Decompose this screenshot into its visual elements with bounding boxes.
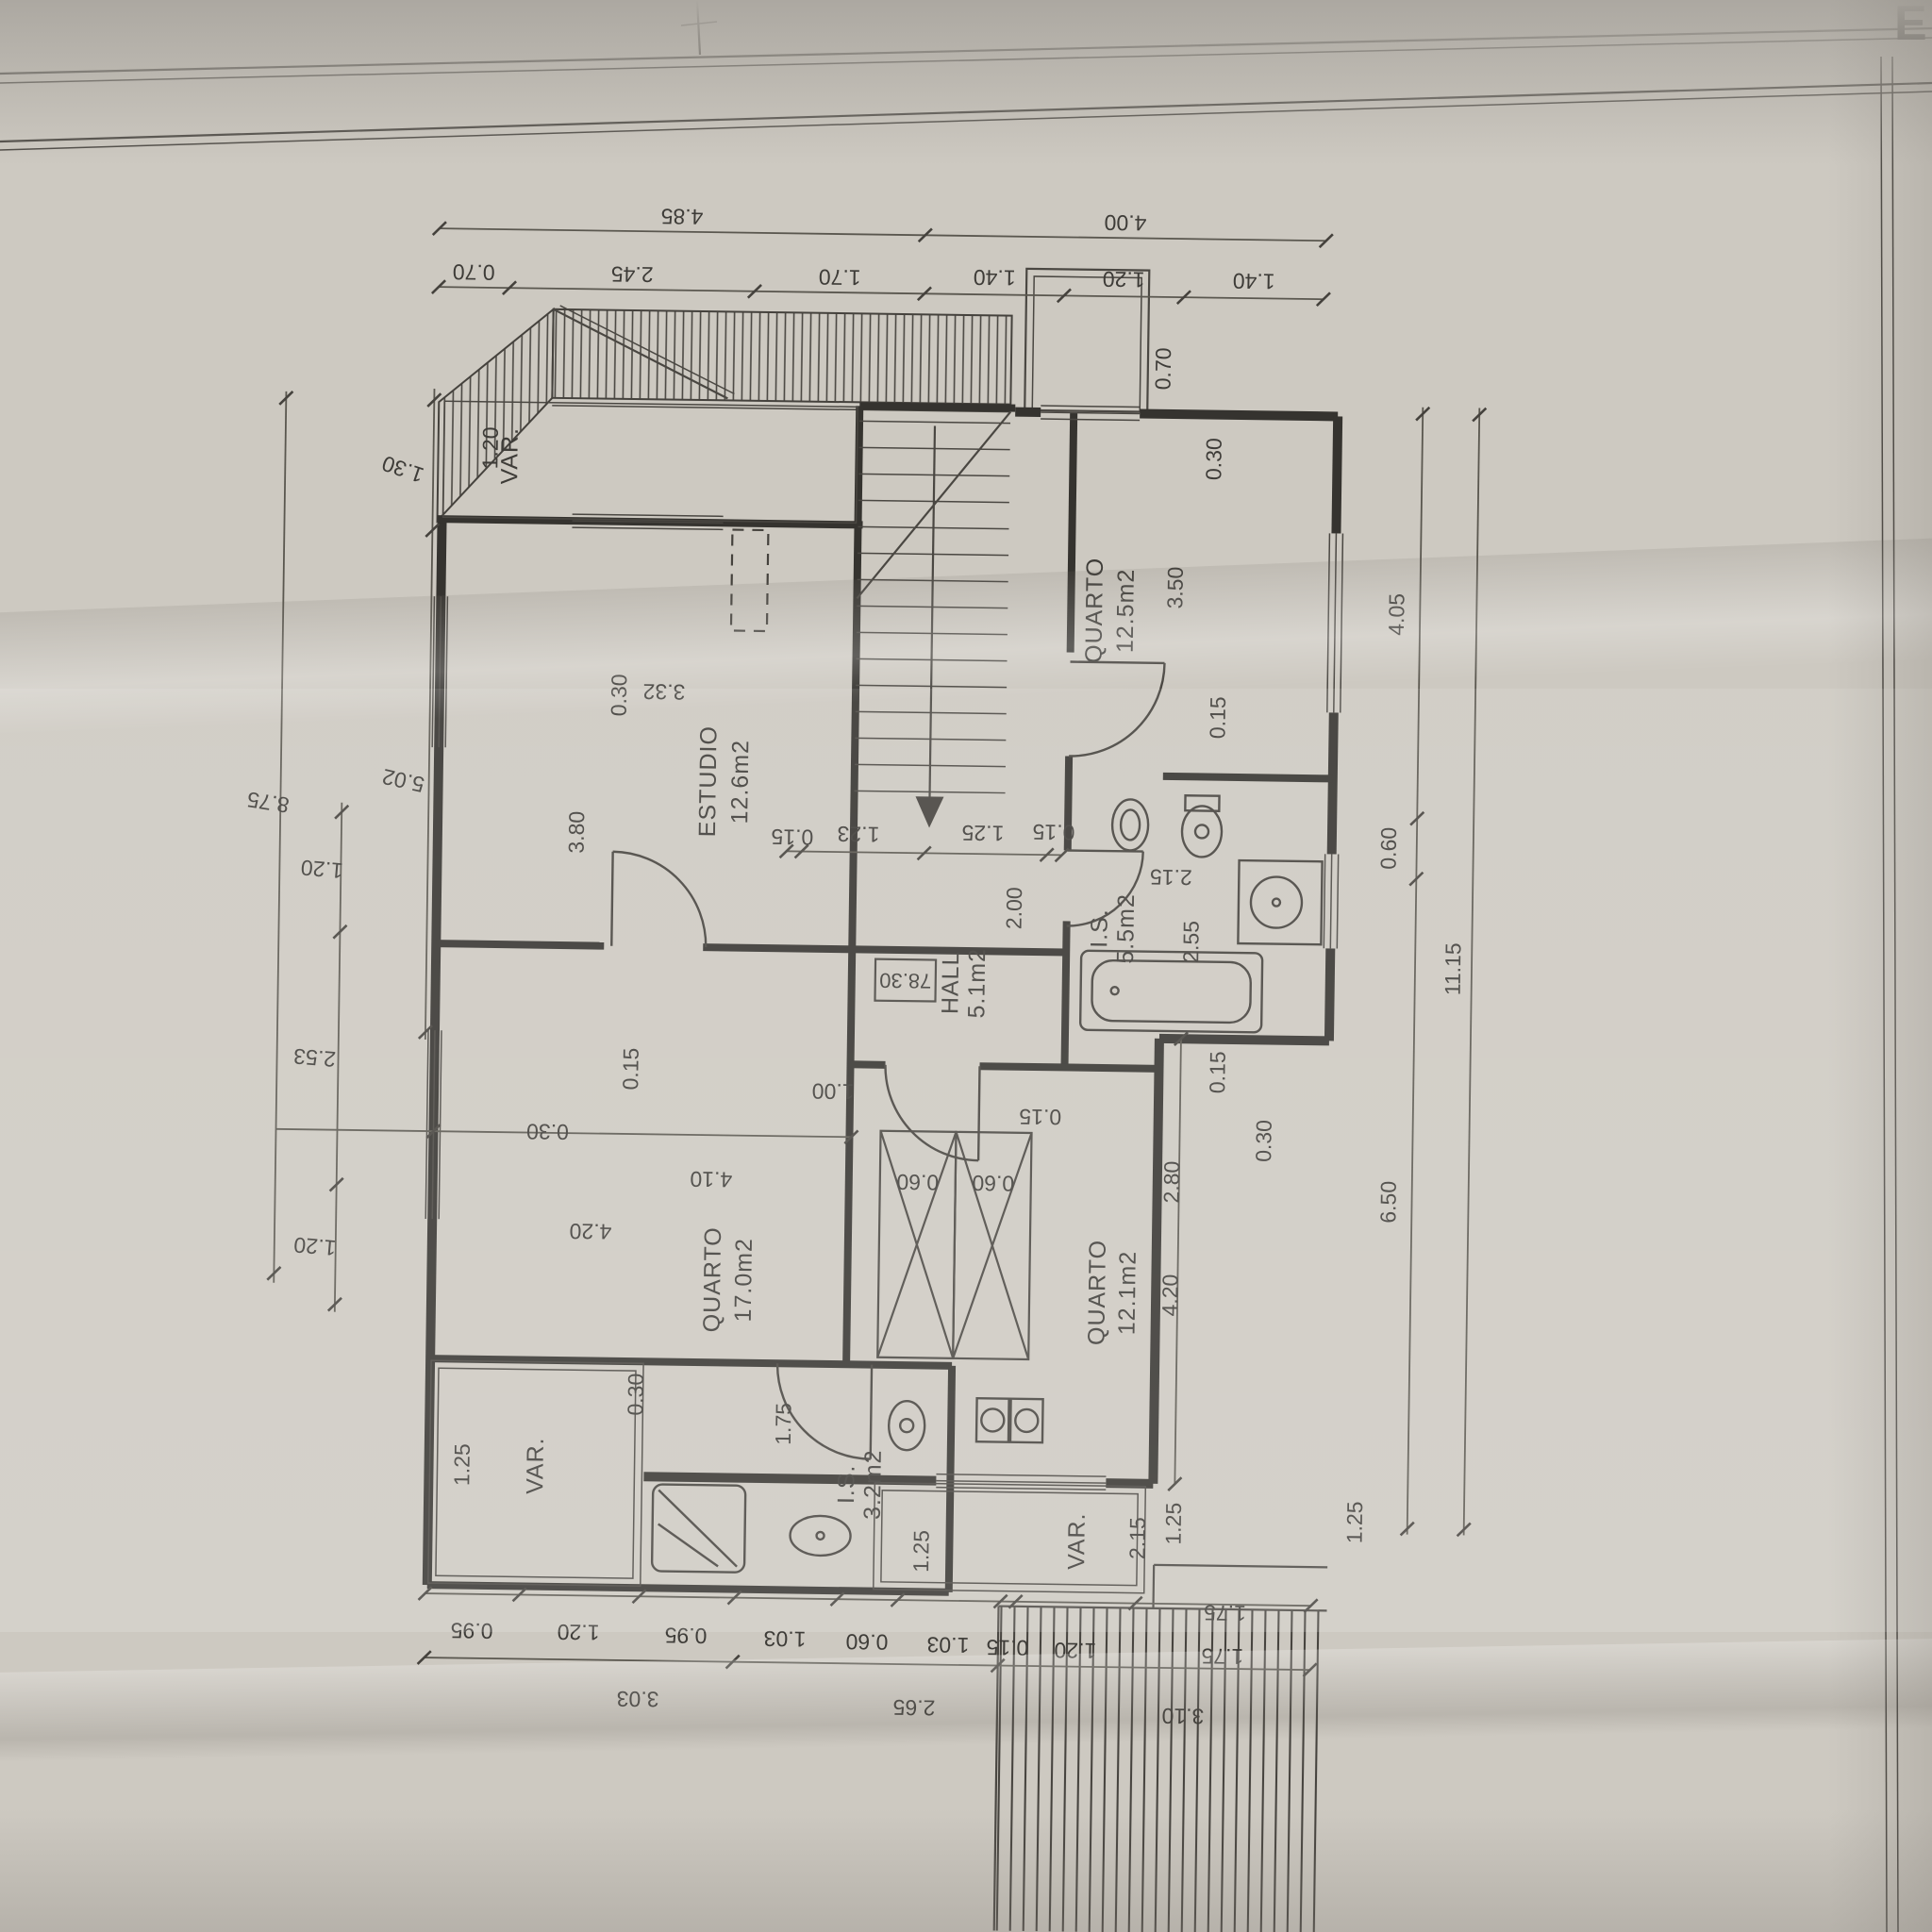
dim: 1.20: [558, 1620, 600, 1645]
dim: 0.60: [972, 1171, 1014, 1196]
dim: 1.03: [763, 1626, 806, 1652]
dim: 0.15: [1032, 820, 1074, 845]
room-label: QUARTO: [1080, 558, 1108, 663]
dim: 1.20: [1054, 1638, 1096, 1663]
washbasin-small-icon: [790, 1515, 851, 1556]
room-labels: ESTUDIO 12.6m2 QUARTO 12.5m2 I.S. 5.5m2 …: [481, 427, 1153, 1571]
room-label: 12.5m2: [1112, 568, 1140, 653]
dim: 0.30: [526, 1120, 569, 1145]
dim: 1.25: [908, 1530, 934, 1573]
stair-direction-arrow: [915, 796, 943, 827]
dim: 3.10: [1161, 1704, 1204, 1729]
room-label: QUARTO: [1083, 1240, 1111, 1345]
dim: 1.75: [1204, 1601, 1246, 1626]
dim: 1.23: [837, 822, 879, 847]
washbasin-icon: [1251, 876, 1303, 928]
toilet-small-icon: [889, 1401, 925, 1451]
roof-line-dashed: [731, 529, 768, 631]
toilet-icon: [1182, 806, 1223, 858]
dim: 1.25: [1160, 1503, 1186, 1545]
dim: 0.15: [771, 824, 813, 850]
dim: 2.00: [1002, 887, 1027, 929]
terrace-hatch: [994, 1563, 1327, 1932]
dim: 1.00: [812, 1079, 855, 1105]
dim: 11.15: [1441, 942, 1466, 995]
floor-level-value: 78.30: [879, 969, 931, 993]
dim: 1.20: [1103, 267, 1145, 292]
room-label: 3.2m2: [859, 1449, 887, 1520]
dim: 0.95: [451, 1618, 493, 1643]
dim: 0.70: [453, 259, 495, 285]
closets: [877, 1131, 1031, 1359]
bidet-icon: [1112, 799, 1149, 851]
room-label: VAR.: [522, 1437, 549, 1494]
plan-group: 4.85 4.00 0.70 2.45 1.70 1.40 1.20 1.40 …: [230, 198, 1489, 1932]
dim: 1.03: [926, 1632, 969, 1657]
dim: 2.15: [1124, 1517, 1150, 1559]
room-label: 5.5m2: [1112, 893, 1140, 964]
room-label: QUARTO: [699, 1226, 727, 1332]
dim: 4.85: [660, 204, 703, 229]
dim: 3.80: [564, 811, 590, 854]
floor-level: 78.30: [874, 959, 936, 1002]
dim: 0.60: [845, 1629, 888, 1655]
dim: 6.50: [1375, 1181, 1401, 1224]
dim: 5.02: [380, 764, 426, 797]
dim: 1.25: [1341, 1501, 1367, 1543]
dim: 4.05: [1384, 593, 1409, 636]
dim: 0.95: [664, 1624, 707, 1649]
room-label: 17.0m2: [730, 1238, 758, 1323]
dim: 4.00: [1104, 210, 1146, 236]
dim: 2.65: [892, 1695, 935, 1721]
dim: 1.75: [771, 1403, 796, 1445]
dim: 0.15: [618, 1047, 643, 1090]
dim: 0.15: [986, 1635, 1028, 1660]
room-label: ESTUDIO: [694, 725, 723, 838]
dim: 0.70: [1151, 347, 1176, 390]
dim: 0.60: [896, 1170, 939, 1195]
room-label: 12.6m2: [726, 740, 754, 824]
dim: 8.75: [245, 787, 291, 818]
room-label: VAR.: [1063, 1512, 1091, 1570]
dim: 3.50: [1162, 566, 1188, 608]
dim: 1.30: [379, 451, 427, 488]
dim: 4.10: [690, 1167, 732, 1192]
room-label: HALL: [937, 951, 964, 1014]
dim: 0.15: [1205, 1051, 1230, 1093]
dim: 1.20: [300, 856, 344, 884]
dim: 1.40: [1233, 269, 1275, 294]
dim: 0.15: [1205, 696, 1230, 739]
dim: 1.75: [1201, 1644, 1243, 1670]
room-label: VAR.: [496, 427, 524, 485]
room-label: I.S.: [833, 1464, 860, 1504]
room-label: 12.1m2: [1114, 1251, 1141, 1336]
roof-hatch: [438, 304, 1012, 528]
dim: 1.25: [449, 1443, 475, 1486]
sheet-corner-letter: E: [1894, 0, 1927, 51]
dim: 3.03: [617, 1687, 659, 1712]
dim: 0.30: [623, 1374, 648, 1416]
dim: 2.45: [611, 262, 654, 288]
dim: 4.20: [1158, 1274, 1183, 1316]
dim: 0.30: [1251, 1120, 1276, 1162]
dim: 1.20: [292, 1233, 337, 1261]
dim: 0.15: [1019, 1105, 1061, 1130]
dim: 0.30: [1201, 438, 1226, 480]
dim: 2.53: [292, 1044, 337, 1073]
dim: 1.40: [974, 265, 1016, 291]
doors: [605, 656, 1165, 1463]
dim: 2.15: [1150, 865, 1192, 891]
dim: 1.70: [819, 265, 861, 291]
dim: 2.80: [1159, 1161, 1185, 1204]
staircase: [728, 408, 1010, 829]
photographed-floorplan-sheet: E: [0, 0, 1932, 1932]
dim: 0.60: [1375, 827, 1401, 870]
dim: 2.55: [1178, 921, 1204, 963]
dim: 3.32: [642, 679, 685, 705]
dim: 1.25: [961, 821, 1004, 846]
room-label: I.S.: [1086, 908, 1113, 948]
room-label: 5.1m2: [963, 948, 991, 1019]
dim: 4.20: [569, 1219, 611, 1244]
dim: 0.30: [607, 674, 632, 716]
floorplan-drawing: E: [0, 0, 1932, 1932]
